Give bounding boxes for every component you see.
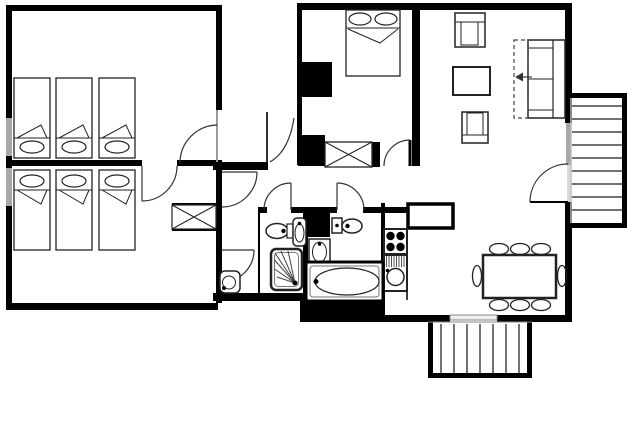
stove-burner-2 xyxy=(396,232,404,240)
wall-left-block-left xyxy=(6,5,12,310)
wall-vestibule-south xyxy=(213,162,268,170)
dining-chair-bottom-3 xyxy=(532,300,551,311)
balcony-stairs-left-bar xyxy=(428,322,433,378)
kitchen-counter xyxy=(408,204,453,228)
door-arc-bedroom2 xyxy=(142,166,177,201)
wall-wc-south xyxy=(213,293,305,301)
wall-left-block-bottom xyxy=(6,303,218,310)
dining-chair-bottom-2 xyxy=(511,300,530,311)
armchair-1-seat xyxy=(461,22,478,45)
wall-dining-south-a xyxy=(383,315,450,322)
window-left-upper xyxy=(6,118,12,156)
sink-a-tap xyxy=(298,222,302,226)
wall-left-block-right-upper xyxy=(216,5,222,110)
dining-chair-top-2 xyxy=(511,244,530,255)
dining-chair-top-3 xyxy=(532,244,551,255)
wall-hall-south-a xyxy=(258,207,267,213)
bathtub-tap xyxy=(314,279,319,284)
dining-chair-bottom-1 xyxy=(490,300,509,311)
door-arc-bedroom3 xyxy=(384,140,410,166)
dining-table xyxy=(483,255,556,298)
threshold-entrance xyxy=(567,165,570,202)
stairs-right-right-bar xyxy=(622,93,627,228)
double-bed-frame xyxy=(346,10,400,76)
door-arc-corridor xyxy=(222,172,257,207)
toilet-b-bowl xyxy=(342,219,362,233)
wall-vestibule-east xyxy=(266,112,268,162)
balcony-stairs-bottom-bar xyxy=(428,373,532,378)
wall-hall-south-b xyxy=(291,207,337,213)
stairs-right-bottom-bar xyxy=(570,223,627,228)
floor-plan-canvas xyxy=(0,0,640,427)
bed-6-frame xyxy=(99,170,135,250)
wall-hall-south-c xyxy=(363,207,408,213)
armchair-2-seat xyxy=(467,113,483,135)
wall-middle-block-top xyxy=(297,3,570,10)
wc-basin-tap xyxy=(222,286,226,290)
toilet-a-drain xyxy=(281,229,285,233)
dining-chair-left xyxy=(473,266,482,287)
stove-burner-1 xyxy=(386,232,394,240)
door-arc-shower xyxy=(264,183,291,210)
column-bedroom xyxy=(302,62,332,97)
sofa-foldout-arrow-head xyxy=(515,73,523,82)
threshold-balcony xyxy=(450,315,497,320)
bed-4-frame xyxy=(14,170,50,250)
door-arc-bedroom1 xyxy=(180,125,217,163)
wall-wardrobe-stub xyxy=(372,142,380,167)
wall-dining-south-b xyxy=(497,315,570,322)
bed-2-frame xyxy=(56,78,92,158)
door-arc-entrance xyxy=(530,164,568,202)
toilet-b-tank-dot xyxy=(335,224,339,228)
toilet-a-tank xyxy=(287,224,293,238)
balcony-stairs-right-bar xyxy=(527,322,532,378)
stove-frame xyxy=(384,229,407,254)
bed-1-frame xyxy=(14,78,50,158)
stove-burner-4 xyxy=(396,243,404,251)
toilet-b-drain xyxy=(345,224,349,228)
wall-left-block-top xyxy=(8,5,222,11)
door-arc-vestibule xyxy=(270,118,294,162)
duct-bathroom xyxy=(303,213,330,237)
coffee-table xyxy=(453,67,490,95)
stairs-right-top-bar xyxy=(570,93,627,98)
bed-3-frame xyxy=(99,78,135,158)
stove-burner-3 xyxy=(386,243,394,251)
window-left-lower xyxy=(6,168,12,206)
dining-chair-top-1 xyxy=(490,244,509,255)
door-arc-bathroom xyxy=(337,183,364,210)
wall-bedroom-east xyxy=(412,8,420,166)
floor-plan-svg xyxy=(0,0,640,427)
wall-shower-west xyxy=(258,213,260,293)
bed-5-frame xyxy=(56,170,92,250)
edge-vestibule-west xyxy=(216,110,218,162)
wall-room-divider-a xyxy=(8,160,142,166)
block-bedroom-corner xyxy=(298,135,325,166)
shower-head-dot xyxy=(293,281,298,286)
kitchen-sink-tap xyxy=(386,269,390,273)
sink-b-tap xyxy=(318,242,322,246)
